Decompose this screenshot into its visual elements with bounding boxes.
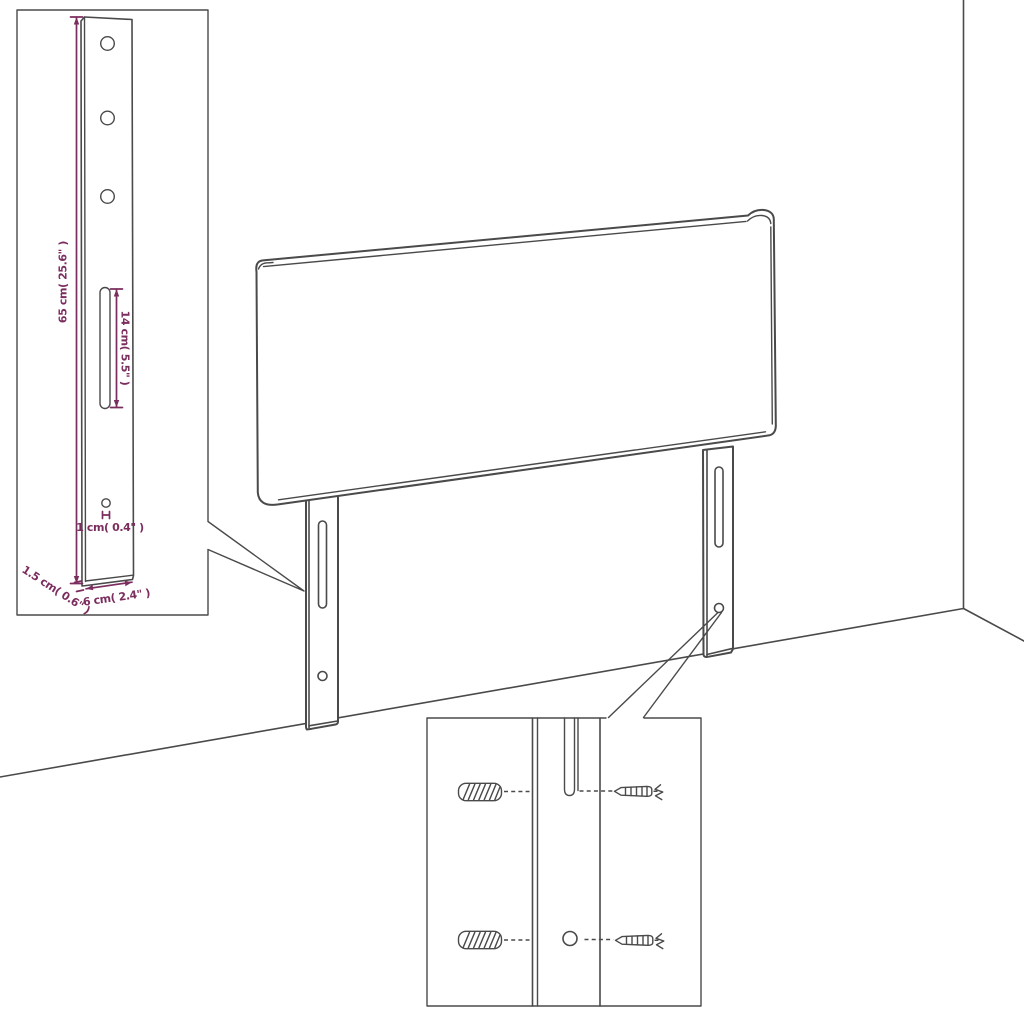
mounting-detail-inset bbox=[427, 718, 701, 1006]
callouts bbox=[208, 522, 722, 718]
diagram-canvas: 65 cm( 25.6" ) 14 cm( 5.5" ) 1 cm( 0.4" … bbox=[0, 0, 1024, 1024]
dimension-height-label: 65 cm( 25.6" ) bbox=[57, 241, 70, 323]
left-leg bbox=[306, 494, 338, 730]
dimension-slot-label: 14 cm( 5.5" ) bbox=[119, 311, 132, 386]
wall-plug-lower bbox=[459, 931, 502, 948]
headboard-assembly-diagram: 65 cm( 25.6" ) 14 cm( 5.5" ) 1 cm( 0.4" … bbox=[0, 0, 1024, 1024]
wall-plug-upper bbox=[459, 783, 502, 800]
screw-lower-body bbox=[616, 935, 653, 945]
headboard-panel bbox=[256, 210, 776, 505]
bracket-front-edge bbox=[85, 17, 86, 582]
screw-upper-body bbox=[615, 786, 652, 796]
left-leg-slot bbox=[319, 521, 327, 608]
panel-outline bbox=[256, 210, 776, 505]
floor-line-right bbox=[964, 609, 1024, 642]
leg-detail-inset: 65 cm( 25.6" ) 14 cm( 5.5" ) 1 cm( 0.4" … bbox=[17, 10, 208, 617]
right-leg-slot bbox=[715, 467, 723, 547]
bracket-slot bbox=[100, 288, 110, 409]
callout-left-leg-to-inset bbox=[208, 522, 304, 592]
right-leg bbox=[703, 447, 733, 657]
dimension-hole-label: 1 cm( 0.4" ) bbox=[76, 521, 144, 534]
